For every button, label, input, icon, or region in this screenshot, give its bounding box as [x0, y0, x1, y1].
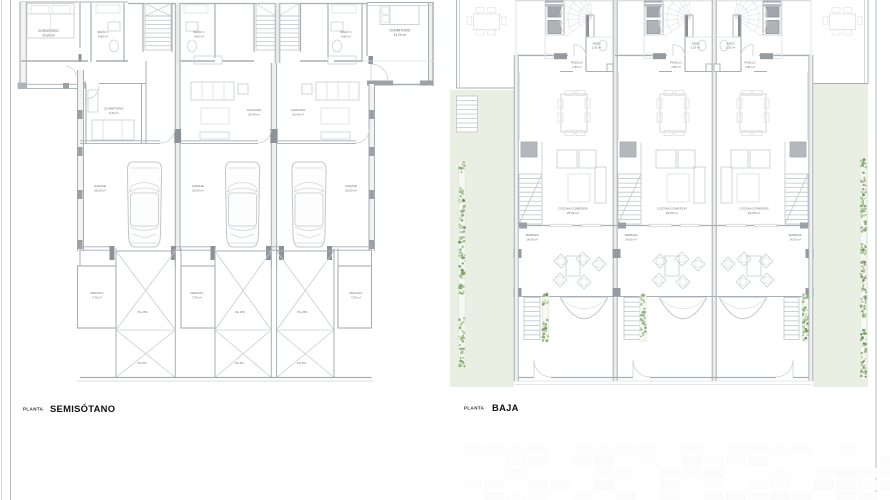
- svg-text:14,00 m²: 14,00 m²: [625, 237, 636, 241]
- svg-text:26,00 m²: 26,00 m²: [748, 211, 760, 215]
- svg-text:2,20 m²: 2,20 m²: [592, 46, 602, 50]
- svg-text:BAÑO 1: BAÑO 1: [97, 29, 108, 34]
- svg-text:Pte 5%: Pte 5%: [297, 361, 306, 365]
- svg-text:14,20 m²: 14,20 m²: [42, 33, 55, 37]
- svg-text:Pte 25%: Pte 25%: [138, 310, 149, 314]
- svg-text:26,00 m²: 26,00 m²: [567, 211, 579, 215]
- svg-text:2,80 m²: 2,80 m²: [572, 65, 582, 69]
- svg-text:Pte 5%: Pte 5%: [138, 361, 147, 365]
- svg-text:2,80 m²: 2,80 m²: [671, 65, 681, 69]
- svg-text:20,40 m²: 20,40 m²: [292, 112, 304, 116]
- svg-text:26,00 m²: 26,00 m²: [666, 211, 678, 215]
- svg-text:26,50 m²: 26,50 m²: [192, 188, 204, 192]
- svg-text:BAÑO 1: BAÑO 1: [193, 29, 204, 34]
- svg-text:2,20 m²: 2,20 m²: [691, 46, 701, 50]
- svg-text:14,20 m²: 14,20 m²: [394, 33, 407, 37]
- svg-text:26,50 m²: 26,50 m²: [345, 188, 357, 192]
- svg-text:SEMISÓTANO: SEMISÓTANO: [50, 403, 115, 414]
- svg-text:Pte 25%: Pte 25%: [235, 310, 246, 314]
- svg-text:4,80 m²: 4,80 m²: [98, 34, 108, 38]
- svg-text:Pte 5%: Pte 5%: [235, 361, 244, 365]
- svg-text:20,40 m²: 20,40 m²: [248, 112, 260, 116]
- svg-text:TERRAZA: TERRAZA: [624, 233, 638, 237]
- svg-text:4,80 m²: 4,80 m²: [194, 34, 204, 38]
- svg-text:3,75 m²: 3,75 m²: [192, 295, 202, 299]
- svg-text:BAÑO 1: BAÑO 1: [340, 29, 351, 34]
- svg-text:BAJA: BAJA: [492, 402, 519, 413]
- svg-text:TERRAZA: TERRAZA: [525, 233, 539, 237]
- svg-text:TERRAZA: TERRAZA: [788, 233, 802, 237]
- svg-text:2,80 m²: 2,80 m²: [745, 65, 755, 69]
- svg-text:PLANTA: PLANTA: [23, 407, 44, 412]
- svg-text:3,75 m²: 3,75 m²: [351, 295, 361, 299]
- svg-text:4,80 m²: 4,80 m²: [341, 34, 351, 38]
- svg-text:2,20 m²: 2,20 m²: [726, 46, 736, 50]
- svg-text:COCINA-COMEDOR: COCINA-COMEDOR: [739, 207, 769, 211]
- svg-text:PLANTA: PLANTA: [464, 406, 485, 411]
- svg-text:14,00 m²: 14,00 m²: [526, 237, 537, 241]
- svg-text:3,75 m²: 3,75 m²: [92, 295, 102, 299]
- svg-text:Pte 25%: Pte 25%: [297, 310, 308, 314]
- svg-text:26,50 m²: 26,50 m²: [94, 188, 106, 192]
- svg-text:9,40 m²: 9,40 m²: [109, 111, 119, 115]
- svg-text:14,00 m²: 14,00 m²: [789, 237, 800, 241]
- svg-text:ALMACÉN: ALMACÉN: [247, 107, 262, 112]
- svg-text:COCINA-COMEDOR: COCINA-COMEDOR: [558, 207, 588, 211]
- svg-text:ALMACÉN: ALMACÉN: [291, 107, 306, 112]
- svg-text:COCINA-COMEDOR: COCINA-COMEDOR: [657, 207, 687, 211]
